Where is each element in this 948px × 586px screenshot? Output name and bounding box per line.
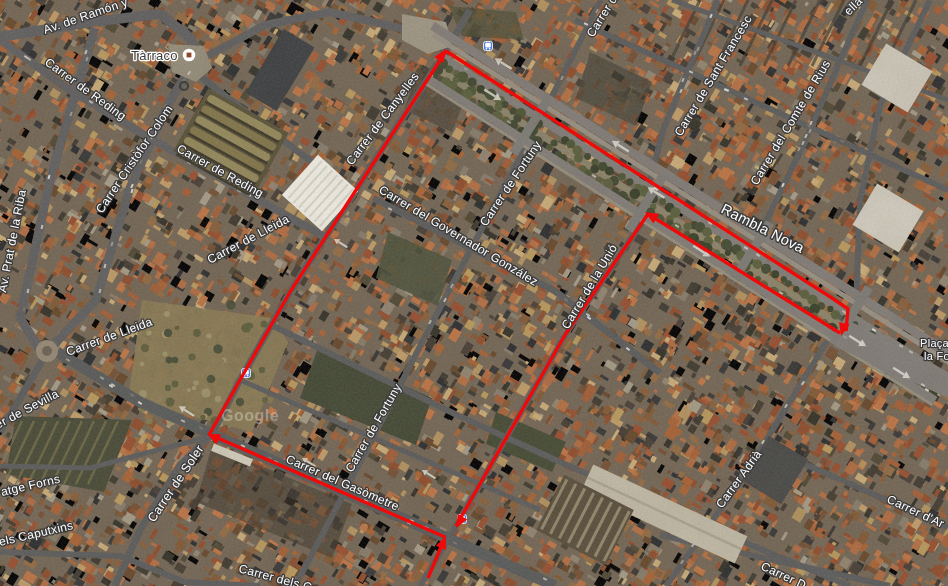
svg-text:Google: Google bbox=[221, 407, 279, 424]
svg-text:Plaça d: Plaça d bbox=[920, 337, 948, 349]
svg-text:la Fon: la Fon bbox=[924, 350, 948, 362]
svg-text:Tàrraco: Tàrraco bbox=[131, 48, 178, 63]
